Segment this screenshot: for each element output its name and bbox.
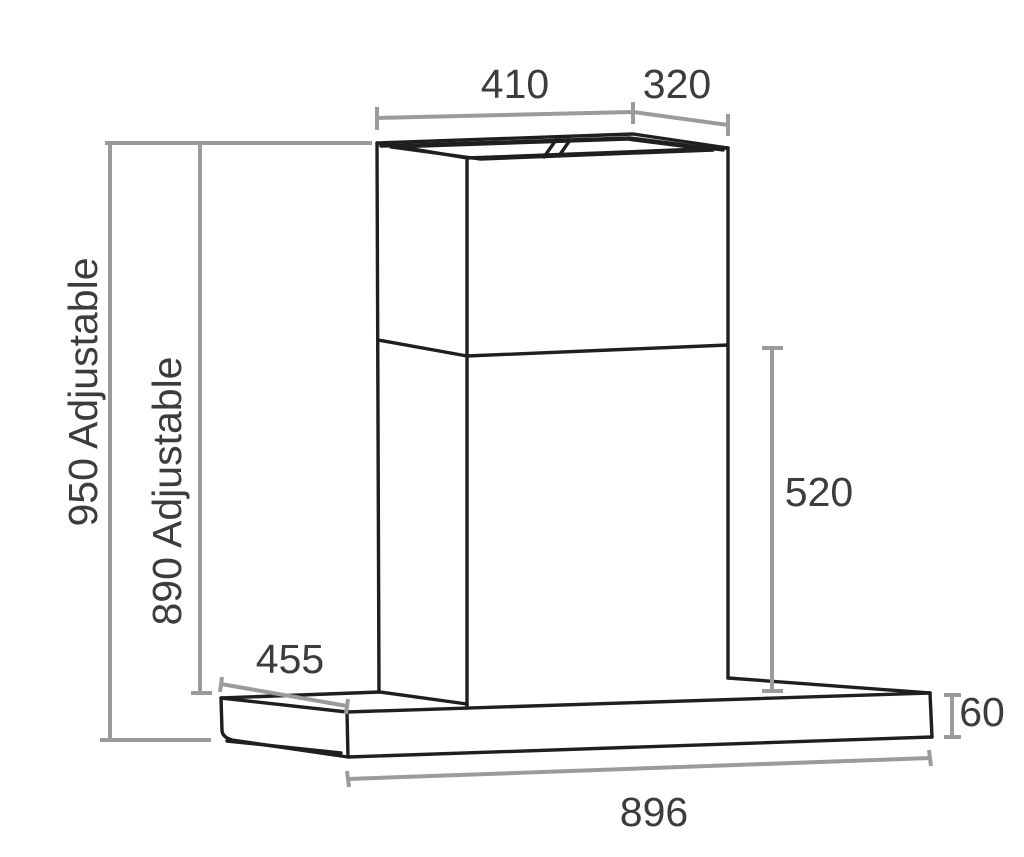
cooker-hood-dimension-diagram: 410 320 950 Adjustable 890 Adjustable 52… <box>0 0 1024 857</box>
label-top-depth: 320 <box>643 61 711 107</box>
duct-bottom-left-edge <box>380 692 467 704</box>
label-top-width: 410 <box>481 61 549 107</box>
dimension-canopy-depth: 455 <box>220 636 348 714</box>
dimension-top-width-depth: 410 320 <box>377 61 728 136</box>
dimension-tick-896-right <box>929 750 931 766</box>
label-canopy-width: 896 <box>620 789 688 835</box>
canopy-top-front-edge <box>347 693 930 712</box>
dimension-canopy-thickness: 60 <box>944 689 1005 737</box>
canopy-front-bottom-edge <box>348 737 932 757</box>
label-canopy-side-depth: 455 <box>256 636 324 682</box>
label-canopy-thickness: 60 <box>959 689 1005 735</box>
dimension-line-410-320 <box>377 112 728 125</box>
dimension-tick-896-left <box>347 771 349 787</box>
dimension-tick-455-right <box>346 699 348 714</box>
duct-back-left-edge <box>377 143 379 692</box>
canopy-right-edge <box>930 693 932 737</box>
canopy-left-face-bottom-detail <box>227 741 341 753</box>
chimney-duct-drawing <box>377 134 728 708</box>
hood-canopy-drawing <box>221 678 932 757</box>
dimension-heights: 950 Adjustable 890 Adjustable <box>60 143 372 740</box>
diagram-canvas: 410 320 950 Adjustable 890 Adjustable 52… <box>0 0 1024 857</box>
label-overall-height: 950 Adjustable <box>60 257 106 526</box>
dimension-tick-455-left <box>220 677 222 692</box>
duct-telescopic-seam <box>378 340 728 356</box>
label-lower-chimney-height: 520 <box>785 469 853 515</box>
dimension-line-896 <box>348 758 930 779</box>
dimension-lower-chimney: 520 <box>762 348 853 691</box>
label-reduced-height: 890 Adjustable <box>144 356 190 625</box>
dimension-canopy-width: 896 <box>347 750 931 835</box>
canopy-top-back-edge-right <box>728 678 930 693</box>
